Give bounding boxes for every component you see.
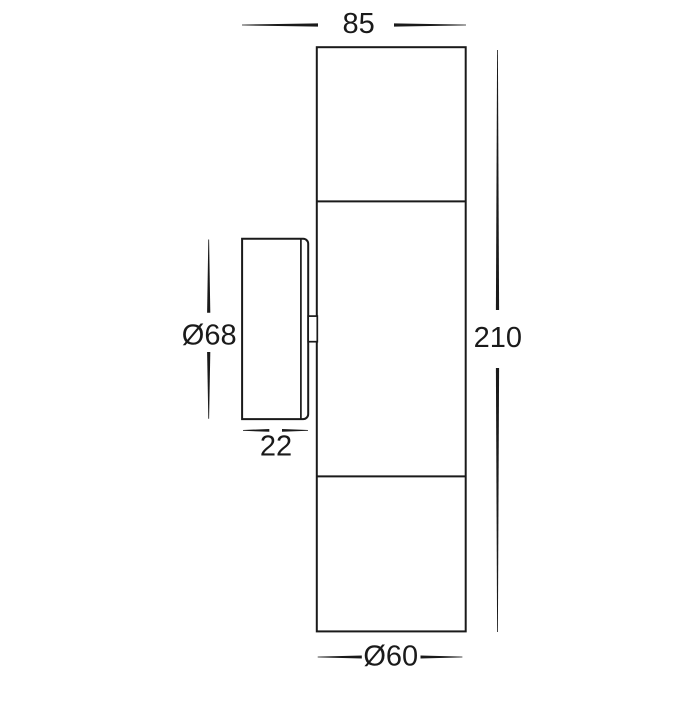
svg-text:210: 210 (474, 322, 522, 354)
svg-text:85: 85 (342, 8, 374, 40)
svg-text:Ø68: Ø68 (182, 320, 237, 352)
svg-text:Ø60: Ø60 (363, 641, 418, 673)
svg-text:22: 22 (260, 431, 292, 463)
